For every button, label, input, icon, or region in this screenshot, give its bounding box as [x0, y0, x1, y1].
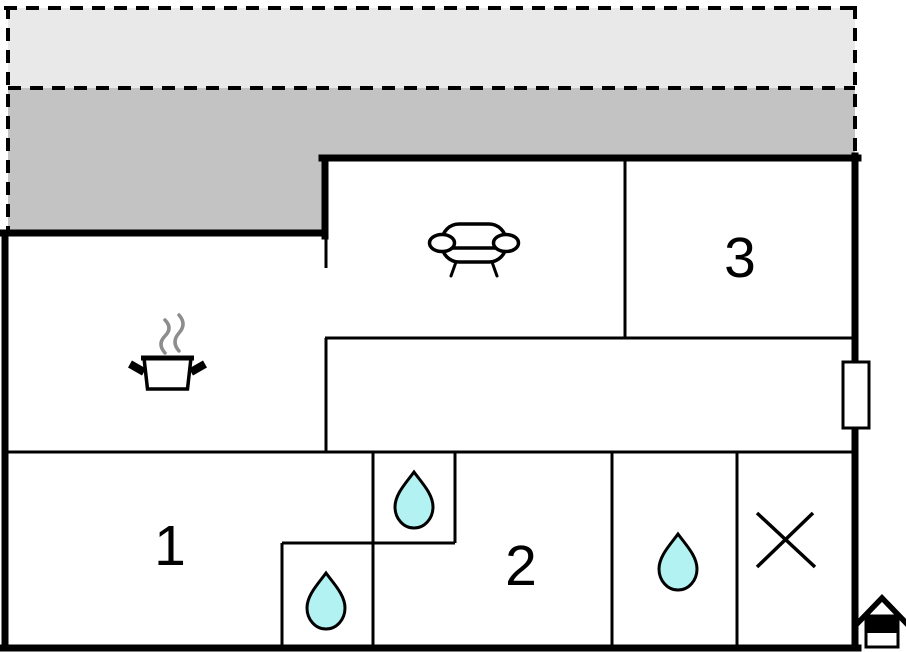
water-drop-icon: [395, 472, 433, 528]
entrance-house-icon: [854, 598, 906, 647]
water-drop-icon: [659, 534, 697, 590]
room-label-2: 2: [505, 534, 537, 598]
floor-plan: 1 2 3: [0, 0, 906, 652]
water-drop-icon: [307, 573, 345, 629]
steam-icon: [161, 315, 183, 353]
terrace-upper: [8, 8, 855, 88]
sofa-icon: [430, 224, 519, 276]
cooking-pot-icon: [130, 358, 205, 389]
room-label-3: 3: [724, 226, 756, 290]
room-label-1: 1: [154, 514, 186, 578]
water-drop-icons: [307, 472, 697, 629]
floor-plan-drawing: 1 2 3: [0, 0, 906, 652]
x-mark-icon: [757, 513, 815, 567]
window-marker: [843, 362, 869, 428]
